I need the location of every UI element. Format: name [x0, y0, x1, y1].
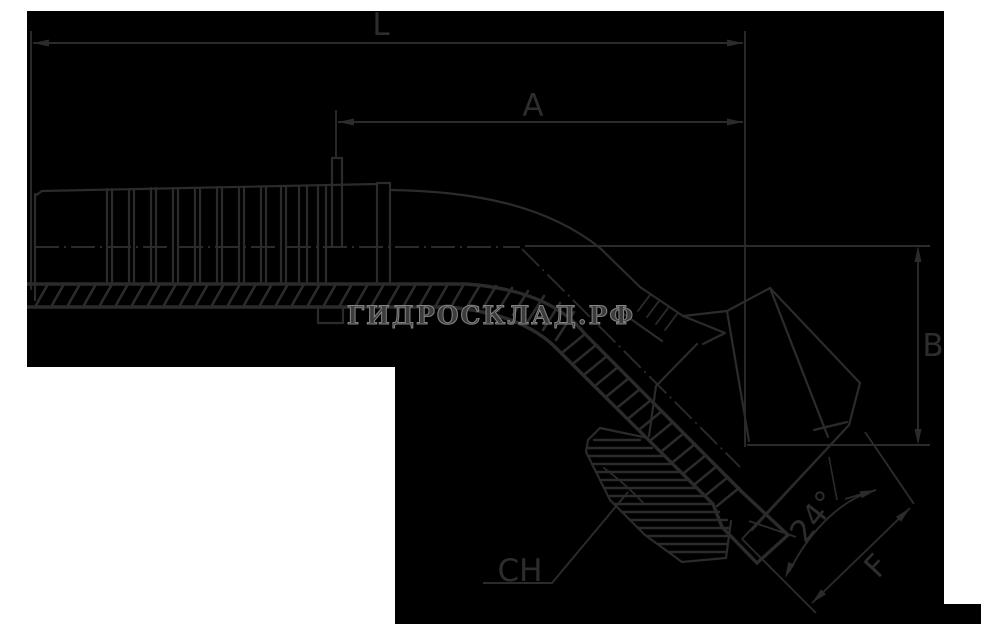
tube-outer-curve [390, 190, 640, 287]
label-B: B [922, 328, 943, 364]
hose-fitting-diagram: L A B CH F 24° ГИДРОСКЛАД.РФ [0, 0, 981, 624]
label-CH: CH [498, 553, 543, 589]
white-block-bottom-left [0, 367, 395, 624]
crimp-tab-top [332, 158, 342, 247]
fitting-drawing-canvas: L A B CH F 24° ГИДРОСКЛАД.РФ [0, 0, 981, 624]
white-frame-right [944, 0, 981, 604]
collar [377, 183, 390, 284]
watermark-text: ГИДРОСКЛАД.РФ [347, 301, 635, 330]
white-frame-top [0, 0, 981, 11]
label-L: L [372, 7, 390, 43]
label-F: F [857, 547, 895, 585]
crimp-tab-bottom [318, 307, 343, 323]
label-A: A [522, 88, 543, 124]
dimension-B [525, 246, 930, 445]
shank-barb-rings [107, 185, 326, 283]
